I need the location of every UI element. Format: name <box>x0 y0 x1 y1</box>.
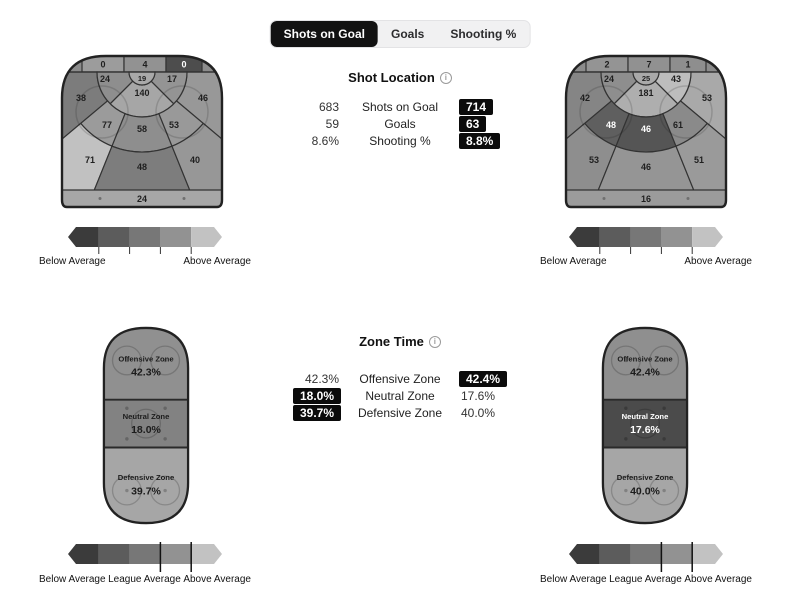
zone-value: 38 <box>76 93 86 103</box>
zone-value: 181 <box>638 88 653 98</box>
zone-value: 53 <box>702 93 712 103</box>
legend-below-label: Below Average <box>540 256 607 267</box>
stat-label: Neutral Zone <box>341 389 459 403</box>
legend-below-label: Below Average <box>39 256 106 267</box>
zone-value: 77 <box>102 120 112 130</box>
zone-value: 140 <box>134 88 149 98</box>
stat-label: Defensive Zone <box>341 406 459 420</box>
zone-value: 7 <box>646 60 651 70</box>
zone-value: 40 <box>190 155 200 165</box>
faceoff-dot-right <box>687 197 690 200</box>
legend-seg-3 <box>130 227 161 247</box>
legend-seg-1 <box>68 227 99 247</box>
legend-seg-5 <box>191 544 222 564</box>
shot-location-stats: Shot Location i 683 Shots on Goal 714 59… <box>280 70 520 150</box>
legend-league-label: League Average <box>108 574 181 585</box>
zone-value: 1 <box>685 60 690 70</box>
zone-value: 46 <box>198 93 208 103</box>
stat-row-goals: 59 Goals 63 <box>280 116 520 131</box>
faceoff-dot-left <box>603 197 606 200</box>
zone-value: 58 <box>137 124 147 134</box>
zone-value: 48 <box>137 162 147 172</box>
legend-seg-2 <box>600 227 631 247</box>
zone-value: 61 <box>673 120 683 130</box>
page: Shots on Goal Goals Shooting % <box>0 0 800 594</box>
legend-below-label: Below Average <box>39 574 106 585</box>
legend-seg-1 <box>569 227 600 247</box>
zone-name: Defensive Zone <box>617 473 673 482</box>
tab-shots-on-goal[interactable]: Shots on Goal <box>271 21 378 47</box>
zone-time-title: Zone Time <box>359 334 424 349</box>
legend-shot-home: Below Average Above Average <box>540 227 752 267</box>
zone-time-rink-away: Offensive Zone 42.3% Neutral Zone 18.0% … <box>102 324 190 527</box>
shot-location-chart-home: 2 7 1 25 24 181 43 42 53 48 46 61 53 46 … <box>564 50 728 212</box>
legend-above-label: Above Average <box>684 256 752 267</box>
info-icon[interactable]: i <box>440 72 452 84</box>
away-value: 8.6% <box>289 134 341 148</box>
away-value: 18.0% <box>289 388 341 404</box>
shot-location-heading: Shot Location i <box>280 70 520 85</box>
zone-value: 19 <box>138 74 146 83</box>
zone-value: 51 <box>694 155 704 165</box>
zone-value: 25 <box>642 74 650 83</box>
away-value: 683 <box>289 100 341 114</box>
zone-value: 17.6% <box>630 424 660 436</box>
shot-location-title: Shot Location <box>348 70 435 85</box>
zone-value: 16 <box>641 194 651 204</box>
faceoff-dot-left <box>99 197 102 200</box>
zone-value: 42 <box>580 93 590 103</box>
home-value: 8.8% <box>459 133 511 149</box>
away-value: 59 <box>289 117 341 131</box>
stat-label: Shooting % <box>341 134 459 148</box>
legend-zone-away: Below Average League Average Above Avera… <box>39 542 251 585</box>
zone-value: 0 <box>181 60 186 70</box>
zone-name: Offensive Zone <box>617 354 672 363</box>
legend-above-label: Above Average <box>183 574 251 585</box>
legend-above-label: Above Average <box>684 574 752 585</box>
zone-name: Neutral Zone <box>622 412 669 421</box>
legend-seg-1 <box>68 544 99 564</box>
legend-seg-2 <box>99 544 130 564</box>
shot-location-chart-away: 0 4 0 19 24 140 17 38 46 77 58 53 71 48 … <box>60 50 224 212</box>
legend-ticks <box>99 247 191 254</box>
zone-value: 24 <box>137 194 147 204</box>
legend-seg-2 <box>600 544 631 564</box>
stat-row-shots-on-goal: 683 Shots on Goal 714 <box>280 99 520 114</box>
tab-shooting-pct[interactable]: Shooting % <box>437 21 529 47</box>
zone-value: 24 <box>100 74 110 84</box>
stat-row-offensive-zone: 42.3% Offensive Zone 42.4% <box>280 371 520 386</box>
legend-league-label: League Average <box>609 574 682 585</box>
home-value: 40.0% <box>459 406 511 420</box>
stat-label: Shots on Goal <box>341 100 459 114</box>
faceoff-dot-right <box>183 197 186 200</box>
zone-value: 4 <box>142 60 147 70</box>
view-tabbar: Shots on Goal Goals Shooting % <box>270 20 531 48</box>
zone-value: 48 <box>606 120 616 130</box>
zone-value: 53 <box>589 155 599 165</box>
legend-seg-4 <box>661 544 692 564</box>
tab-goals[interactable]: Goals <box>378 21 437 47</box>
zone-value: 0 <box>100 60 105 70</box>
zone-value: 2 <box>604 60 609 70</box>
legend-seg-4 <box>160 227 191 247</box>
stat-row-neutral-zone: 18.0% Neutral Zone 17.6% <box>280 388 520 403</box>
stat-label: Goals <box>341 117 459 131</box>
legend-seg-2 <box>99 227 130 247</box>
zone-name: Neutral Zone <box>123 412 170 421</box>
zone-name: Offensive Zone <box>118 354 173 363</box>
legend-seg-3 <box>631 544 662 564</box>
legend-seg-3 <box>631 227 662 247</box>
home-value: 714 <box>459 99 511 115</box>
legend-ticks <box>600 247 692 254</box>
zone-value: 17 <box>167 74 177 84</box>
zone-value: 39.7% <box>131 485 161 497</box>
legend-seg-5 <box>692 544 723 564</box>
legend-zone-home: Below Average League Average Above Avera… <box>540 542 752 585</box>
legend-seg-1 <box>569 544 600 564</box>
stat-label: Offensive Zone <box>341 372 459 386</box>
zone-value: 42.4% <box>630 367 660 379</box>
zone-time-stats: Zone Time i 42.3% Offensive Zone 42.4% 1… <box>280 334 520 422</box>
zone-value: 46 <box>641 162 651 172</box>
legend-seg-4 <box>661 227 692 247</box>
home-value: 42.4% <box>459 371 511 387</box>
legend-seg-5 <box>692 227 723 247</box>
zone-value: 71 <box>85 155 95 165</box>
stat-row-defensive-zone: 39.7% Defensive Zone 40.0% <box>280 405 520 420</box>
legend-seg-4 <box>160 544 191 564</box>
legend-shot-away: Below Average Above Average <box>39 227 251 267</box>
zone-value: 43 <box>671 74 681 84</box>
zone-value: 42.3% <box>131 367 161 379</box>
legend-seg-3 <box>130 544 161 564</box>
legend-seg-5 <box>191 227 222 247</box>
zone-value: 46 <box>641 124 651 134</box>
info-icon[interactable]: i <box>429 336 441 348</box>
zone-name: Defensive Zone <box>118 473 174 482</box>
legend-above-label: Above Average <box>183 256 251 267</box>
zone-value: 24 <box>604 74 614 84</box>
away-value: 39.7% <box>289 405 341 421</box>
stat-row-shooting-pct: 8.6% Shooting % 8.8% <box>280 133 520 148</box>
zone-time-heading: Zone Time i <box>280 334 520 349</box>
zone-value: 53 <box>169 120 179 130</box>
away-value: 42.3% <box>289 372 341 386</box>
home-value: 63 <box>459 116 511 132</box>
legend-below-label: Below Average <box>540 574 607 585</box>
zone-value: 40.0% <box>630 485 660 497</box>
home-value: 17.6% <box>459 389 511 403</box>
zone-time-rink-home: Offensive Zone 42.4% Neutral Zone 17.6% … <box>601 324 689 527</box>
zone-value: 18.0% <box>131 424 161 436</box>
